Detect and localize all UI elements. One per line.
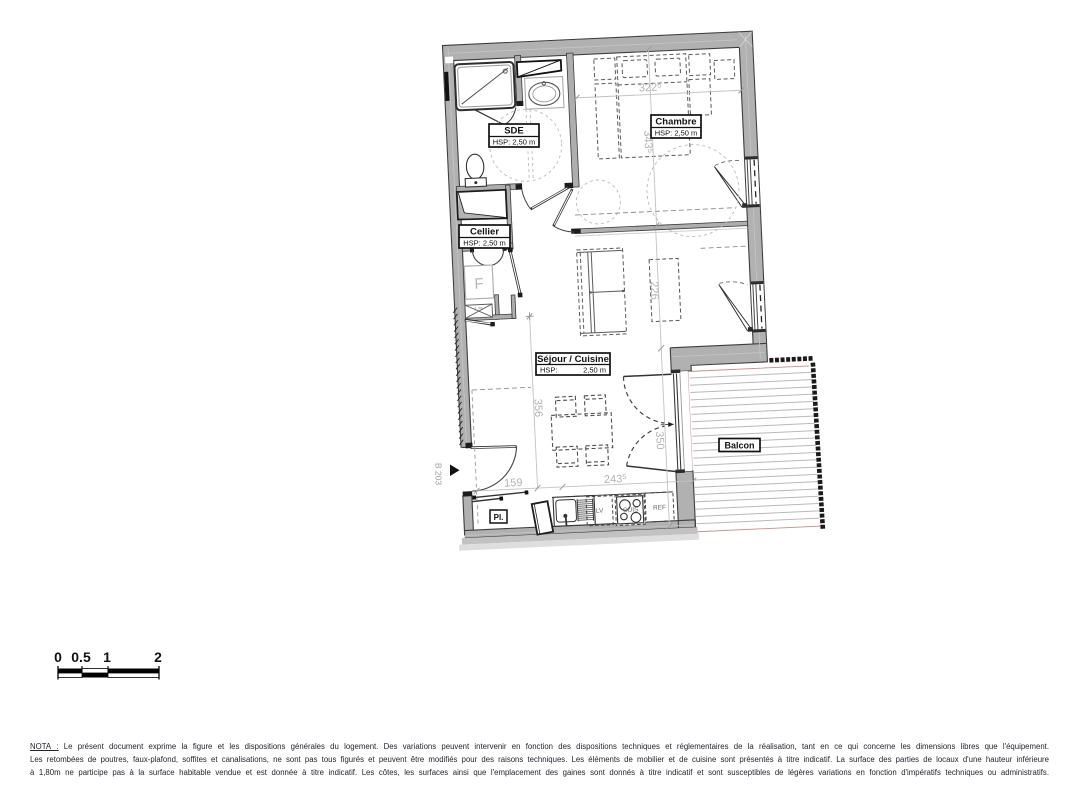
svg-text:4.10e: 4.10e (474, 306, 483, 310)
svg-text:1: 1 (103, 649, 111, 665)
svg-text:2,50 m: 2,50 m (583, 366, 606, 375)
svg-text:Cellier: Cellier (470, 227, 499, 238)
svg-text:2: 2 (154, 649, 162, 665)
svg-text:CUIS: CUIS (623, 506, 640, 514)
svg-text:226: 226 (648, 281, 661, 300)
svg-text:B 203: B 203 (434, 463, 444, 485)
svg-text:Pl.: Pl. (494, 513, 504, 522)
svg-text:HSP:: HSP: (540, 366, 558, 375)
svg-text:HSP: 2,50 m: HSP: 2,50 m (463, 239, 506, 248)
svg-text:0.5: 0.5 (71, 649, 91, 665)
svg-text:Balcon: Balcon (724, 441, 754, 451)
svg-text:REF: REF (653, 504, 666, 512)
svg-text:SDE: SDE (504, 126, 524, 137)
svg-text:Chambre: Chambre (655, 117, 696, 128)
svg-text:159: 159 (504, 477, 523, 490)
svg-text:0: 0 (54, 649, 62, 665)
svg-text:HSP: 2,50 m: HSP: 2,50 m (493, 138, 536, 147)
svg-text:356: 356 (531, 399, 544, 418)
svg-text:Séjour / Cuisine: Séjour / Cuisine (537, 354, 609, 365)
svg-text:350: 350 (653, 431, 666, 450)
svg-text:3225: 3225 (639, 80, 662, 94)
svg-text:LV: LV (596, 508, 604, 515)
svg-text:F: F (474, 275, 484, 292)
svg-text:HSP: 2,50 m: HSP: 2,50 m (655, 129, 698, 138)
